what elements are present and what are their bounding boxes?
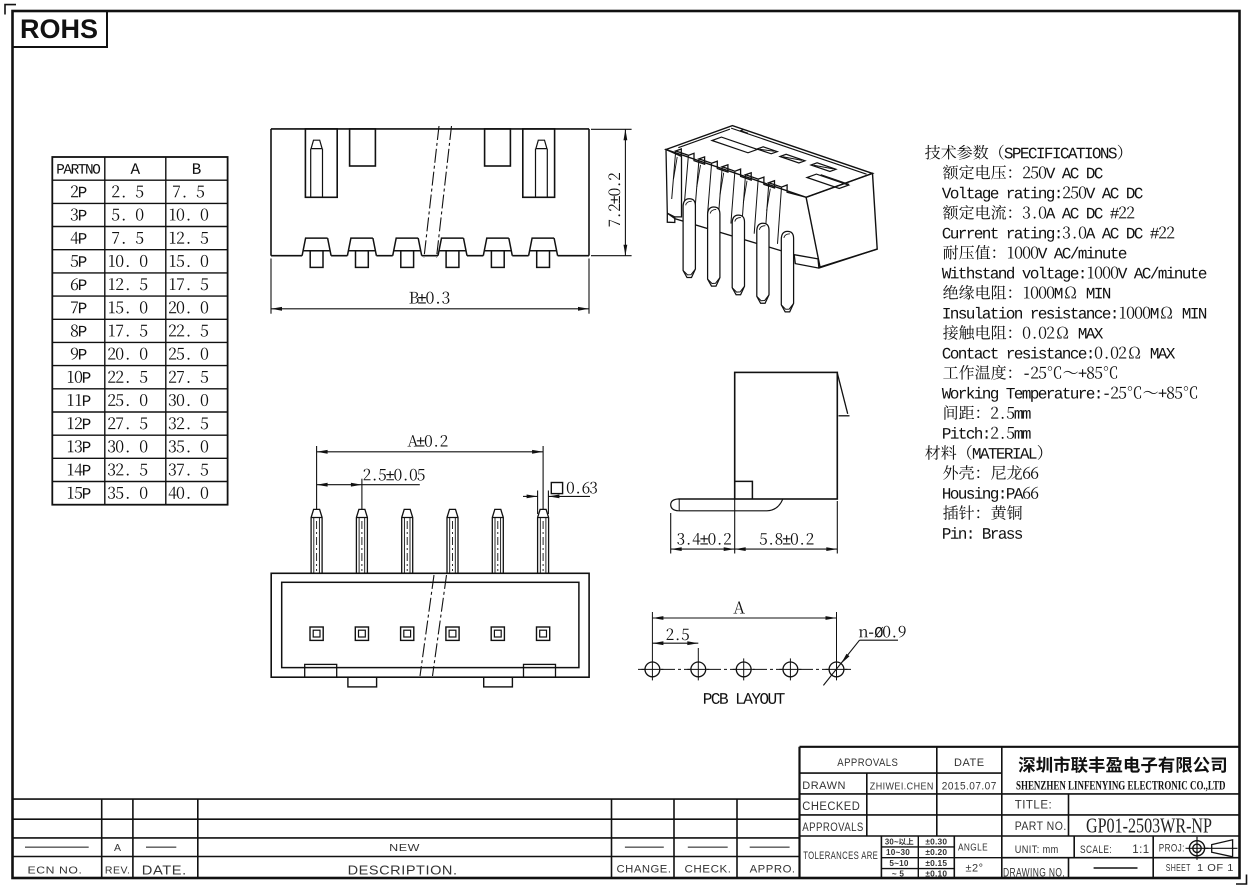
svg-text:UNIT: mm: UNIT: mm — [1015, 844, 1059, 856]
svg-text:±0.10: ±0.10 — [925, 869, 947, 879]
svg-text:5~10: 5~10 — [889, 859, 908, 868]
svg-text:30~: 30~ — [885, 837, 899, 846]
svg-text:SCALE:: SCALE: — [1080, 844, 1112, 856]
svg-text:ROHS: ROHS — [20, 14, 98, 44]
svg-text:DRAWING NO.: DRAWING NO. — [1003, 868, 1065, 880]
svg-text:CHANGE.: CHANGE. — [617, 864, 672, 876]
svg-text:APPRO.: APPRO. — [750, 864, 796, 876]
svg-text:ECN NO.: ECN NO. — [28, 865, 83, 877]
svg-text:TITLE:: TITLE: — [1015, 800, 1053, 812]
svg-text:2015.07.07: 2015.07.07 — [942, 781, 997, 793]
svg-text:DRAWN: DRAWN — [802, 780, 846, 792]
svg-text:±2°: ±2° — [965, 863, 983, 875]
svg-text:1 OF 1: 1 OF 1 — [1197, 862, 1234, 874]
svg-text:CHECK.: CHECK. — [685, 864, 732, 876]
svg-text:SHEET: SHEET — [1166, 862, 1191, 874]
svg-text:±0.30: ±0.30 — [925, 836, 947, 846]
svg-text:APPROVALS: APPROVALS — [837, 757, 898, 769]
svg-text:DATE: DATE — [954, 757, 985, 769]
svg-text:DATE.: DATE. — [142, 863, 187, 878]
svg-text:SHENZHEN LINFENYING ELECTRONIC: SHENZHEN LINFENYING ELECTRONIC CO.,LTD — [1016, 777, 1226, 792]
svg-text:REV.: REV. — [105, 865, 131, 877]
svg-text:TOLERANCES ARE: TOLERANCES ARE — [803, 850, 878, 862]
svg-text:PART NO.: PART NO. — [1015, 821, 1067, 833]
svg-text:CHECKED: CHECKED — [802, 801, 860, 813]
svg-text:APPROVALS: APPROVALS — [802, 822, 864, 834]
svg-text:~ 5: ~ 5 — [892, 869, 904, 878]
svg-text:ANGLE: ANGLE — [958, 841, 988, 853]
svg-text:GP01-2503WR-NP: GP01-2503WR-NP — [1086, 814, 1212, 838]
svg-text:A: A — [114, 842, 122, 854]
svg-text:±0.15: ±0.15 — [925, 858, 947, 868]
svg-text:±0.20: ±0.20 — [925, 847, 947, 857]
svg-text:DESCRIPTION.: DESCRIPTION. — [348, 863, 458, 878]
svg-text:PROJ:: PROJ: — [1159, 843, 1185, 855]
svg-text:10~30: 10~30 — [886, 848, 910, 857]
svg-text:NEW: NEW — [389, 842, 420, 854]
svg-text:ZHIWEI.CHEN: ZHIWEI.CHEN — [870, 781, 934, 793]
svg-text:1:1: 1:1 — [1132, 844, 1150, 856]
